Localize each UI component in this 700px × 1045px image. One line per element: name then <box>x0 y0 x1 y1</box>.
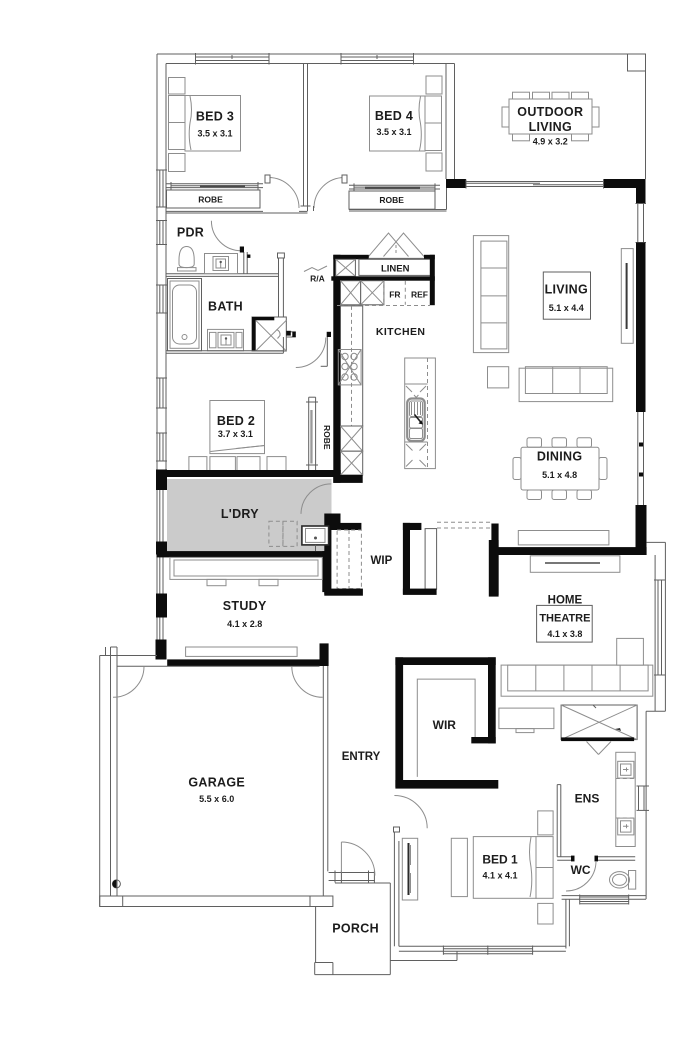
svg-text:HOME: HOME <box>548 595 583 607</box>
svg-text:3.5 x 3.1: 3.5 x 3.1 <box>376 127 411 137</box>
svg-text:PORCH: PORCH <box>332 922 379 936</box>
svg-text:THEATRE: THEATRE <box>539 612 590 624</box>
svg-text:ENTRY: ENTRY <box>342 751 381 763</box>
svg-text:DINING: DINING <box>537 449 583 463</box>
svg-text:FR: FR <box>389 290 400 300</box>
svg-text:4.9 x 3.2: 4.9 x 3.2 <box>533 137 568 147</box>
svg-text:R/A: R/A <box>310 274 325 284</box>
svg-text:BED 4: BED 4 <box>375 109 413 123</box>
svg-text:PDR: PDR <box>177 226 204 240</box>
svg-text:LIVING: LIVING <box>545 282 588 296</box>
svg-text:ROBE: ROBE <box>322 425 332 450</box>
svg-text:ENS: ENS <box>575 791 600 805</box>
svg-text:GARAGE: GARAGE <box>188 775 245 789</box>
svg-text:WC: WC <box>571 863 591 877</box>
svg-text:3.5 x 3.1: 3.5 x 3.1 <box>197 129 232 139</box>
svg-text:WIR: WIR <box>433 718 457 732</box>
svg-text:4.1 x 3.8: 4.1 x 3.8 <box>547 629 582 639</box>
svg-text:REF: REF <box>411 290 428 300</box>
svg-text:5.1 x 4.8: 5.1 x 4.8 <box>542 470 577 480</box>
svg-text:WIP: WIP <box>371 555 393 567</box>
svg-text:BATH: BATH <box>208 300 243 314</box>
svg-text:4.1 x 4.1: 4.1 x 4.1 <box>482 871 517 881</box>
svg-text:LIVING: LIVING <box>529 120 572 134</box>
svg-text:OUTDOOR: OUTDOOR <box>517 105 583 119</box>
svg-text:STUDY: STUDY <box>223 599 267 613</box>
svg-text:5.5 x 6.0: 5.5 x 6.0 <box>199 794 234 804</box>
svg-text:BED 3: BED 3 <box>196 110 234 124</box>
svg-text:LINEN: LINEN <box>381 264 410 275</box>
svg-text:KITCHEN: KITCHEN <box>376 326 425 338</box>
svg-text:4.1 x 2.8: 4.1 x 2.8 <box>227 619 262 629</box>
svg-text:BED 2: BED 2 <box>217 414 255 428</box>
svg-text:ROBE: ROBE <box>379 195 404 205</box>
svg-text:BED 1: BED 1 <box>482 852 518 866</box>
svg-text:L'DRY: L'DRY <box>221 507 259 521</box>
svg-text:ROBE: ROBE <box>198 195 223 205</box>
svg-text:3.7 x 3.1: 3.7 x 3.1 <box>218 429 253 439</box>
svg-text:5.1 x 4.4: 5.1 x 4.4 <box>549 303 584 313</box>
